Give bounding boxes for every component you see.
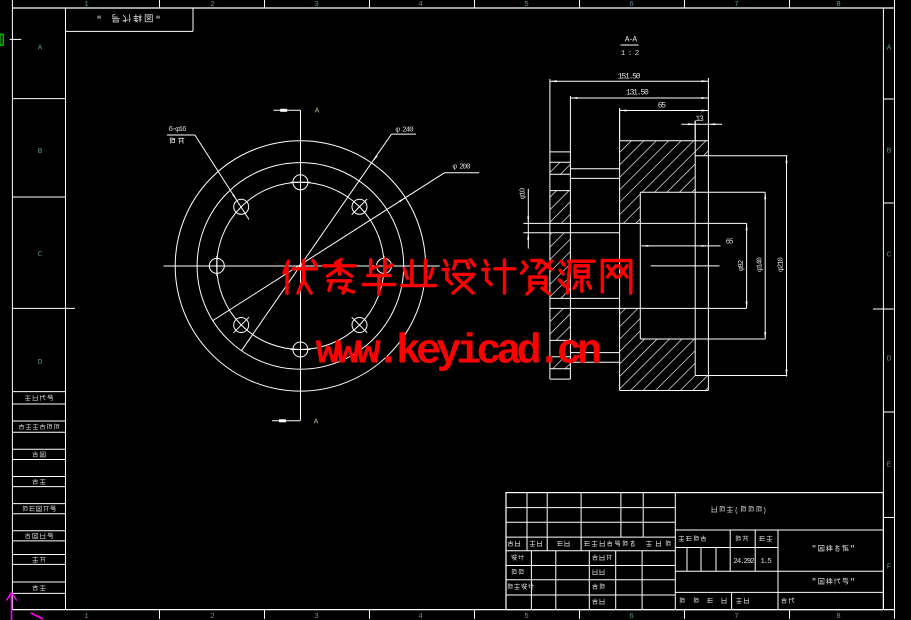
svg-text:151.50: 151.50 bbox=[618, 72, 641, 81]
svg-text:φ140: φ140 bbox=[757, 257, 765, 272]
svg-text:": " bbox=[96, 9, 101, 19]
svg-text:8: 8 bbox=[836, 613, 840, 620]
svg-text:": " bbox=[155, 9, 160, 19]
svg-text:www.keyicad.cn: www.keyicad.cn bbox=[316, 328, 600, 376]
svg-text:B: B bbox=[887, 148, 892, 156]
svg-text:2: 2 bbox=[210, 613, 214, 620]
svg-text:C: C bbox=[38, 251, 43, 259]
svg-text:D: D bbox=[887, 356, 892, 364]
svg-text:": " bbox=[850, 545, 855, 554]
svg-text:F: F bbox=[887, 564, 892, 572]
svg-text:φ10: φ10 bbox=[520, 187, 528, 199]
svg-text:24.292: 24.292 bbox=[733, 558, 754, 566]
svg-text:A: A bbox=[38, 45, 43, 53]
svg-text:C: C bbox=[887, 252, 892, 260]
svg-text:": " bbox=[850, 578, 855, 587]
svg-text:1.5: 1.5 bbox=[760, 558, 772, 566]
svg-text:A: A bbox=[314, 419, 319, 427]
svg-text:φ82: φ82 bbox=[738, 260, 746, 271]
svg-text:7: 7 bbox=[734, 1, 738, 9]
svg-text:": " bbox=[812, 545, 817, 554]
svg-text:): ) bbox=[762, 508, 766, 516]
svg-text:D: D bbox=[38, 359, 43, 367]
svg-text:φ210: φ210 bbox=[778, 257, 786, 272]
svg-text:": " bbox=[812, 578, 817, 587]
svg-text:131.50: 131.50 bbox=[626, 89, 649, 98]
svg-text:2: 2 bbox=[210, 1, 214, 9]
svg-text:7: 7 bbox=[734, 613, 738, 620]
svg-text:B: B bbox=[38, 148, 43, 156]
svg-text:6-φ16: 6-φ16 bbox=[168, 126, 187, 134]
svg-text:φ 200: φ 200 bbox=[452, 164, 471, 172]
svg-text:A-A: A-A bbox=[625, 36, 638, 45]
svg-text:E: E bbox=[887, 462, 892, 470]
svg-text:A: A bbox=[887, 45, 892, 53]
svg-text:(: ( bbox=[734, 508, 738, 516]
svg-text:1 : 2: 1 : 2 bbox=[621, 50, 639, 58]
svg-text:8: 8 bbox=[836, 1, 840, 9]
svg-text:φ 240: φ 240 bbox=[395, 126, 414, 134]
svg-text:A: A bbox=[315, 108, 320, 116]
